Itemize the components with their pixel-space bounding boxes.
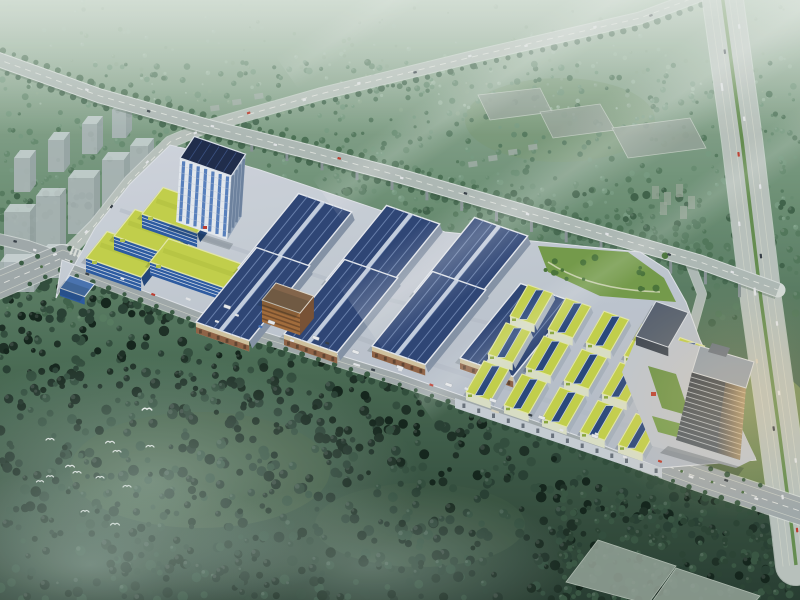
aerial-rendering-stage: Aerial rendering of a solar-roof industr… xyxy=(0,0,800,600)
atmosphere-haze xyxy=(0,0,800,600)
aerial-scene xyxy=(0,0,800,600)
